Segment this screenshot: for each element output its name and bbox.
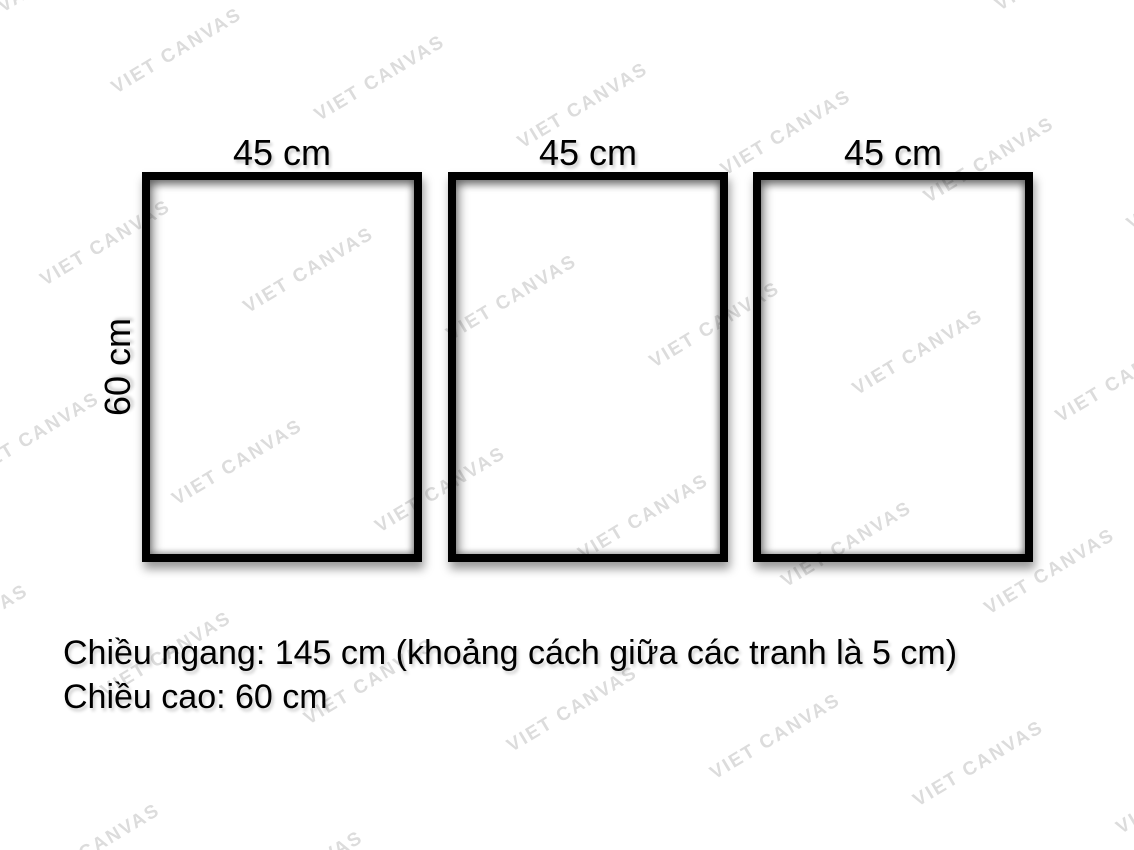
watermark-text: VIET CANVAS	[26, 800, 164, 850]
caption-line-vertical: Chiều cao: 60 cm	[63, 675, 957, 719]
watermark-text: VIET CANVAS	[1123, 140, 1134, 235]
watermark-text: VIET CANVAS	[0, 0, 43, 72]
frame3-width-label: 45 cm	[753, 133, 1033, 173]
frame1-rectangle	[142, 172, 422, 562]
frame1-width-label: 45 cm	[142, 133, 422, 173]
caption-line-horizontal: Chiều ngang: 145 cm (khoảng cách giữa cá…	[63, 631, 957, 675]
watermark-text: VIET CANVAS	[991, 0, 1129, 16]
diagram-canvas: VIET CANVASVIET CANVASVIET CANVASVIET CA…	[0, 0, 1134, 850]
watermark-text: VIET CANVAS	[1113, 744, 1134, 839]
frame2-width-label: 45 cm	[448, 133, 728, 173]
caption: Chiều ngang: 145 cm (khoảng cách giữa cá…	[63, 631, 957, 719]
watermark-text: VIET CANVAS	[311, 31, 449, 126]
watermark-text: VIET CANVAS	[910, 717, 1048, 812]
frame-height-label: 60 cm	[97, 318, 139, 416]
watermark-text: VIET CANVAS	[0, 388, 104, 483]
watermark-text: VIET CANVAS	[108, 4, 246, 99]
watermark-text: VIET CANVAS	[1052, 333, 1134, 428]
frame3-rectangle	[753, 172, 1033, 562]
frame2-rectangle	[448, 172, 728, 562]
watermark-text: VIET CANVAS	[229, 827, 367, 850]
watermark-text: VIET CANVAS	[0, 580, 33, 675]
